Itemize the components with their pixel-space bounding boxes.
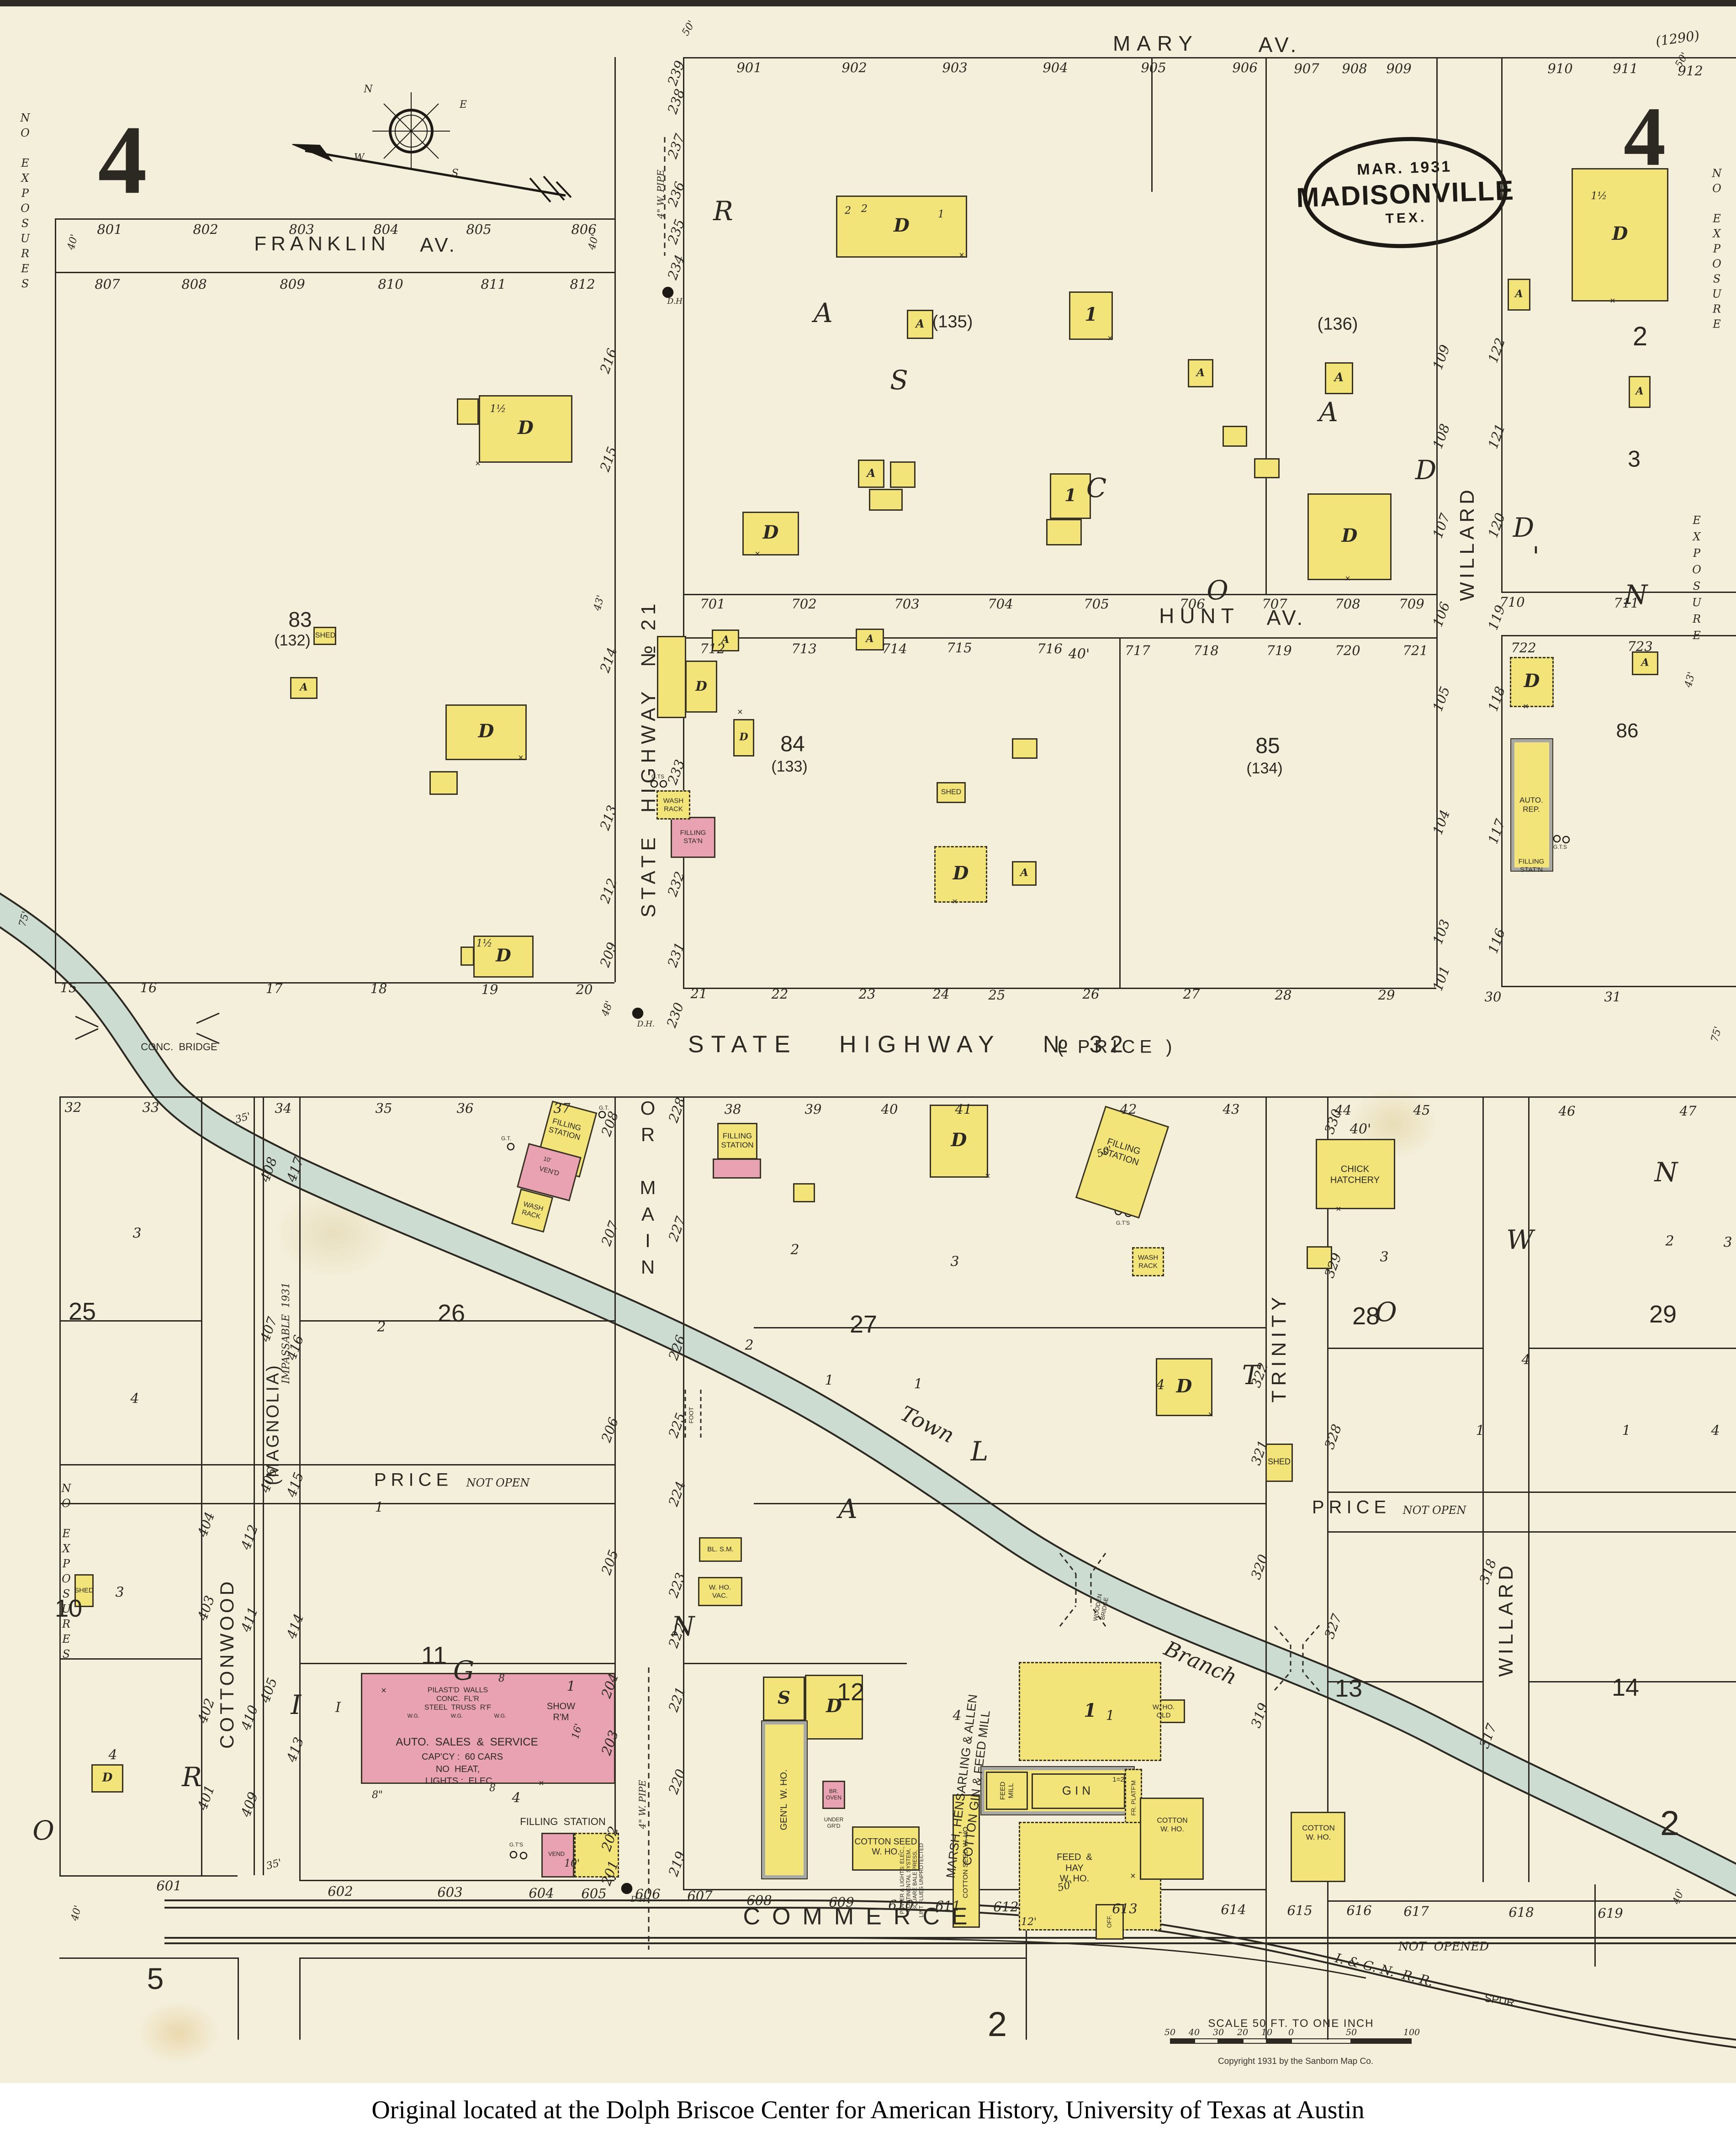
building-1: 1	[1069, 291, 1113, 340]
building-letter: D	[1342, 525, 1358, 546]
street-number: 607	[687, 1888, 712, 1904]
street-number: 617	[1403, 1904, 1429, 1919]
dimension-label: 1½	[1591, 190, 1607, 202]
hydrant-dot	[633, 1008, 643, 1018]
building-label: FR. PLATF'M	[1130, 1780, 1137, 1815]
compass-arrow	[305, 151, 566, 196]
street-number: 605	[581, 1886, 606, 1901]
building-A: A	[1508, 279, 1530, 311]
block-number: 25	[69, 1297, 96, 1327]
stamp-date: MAR. 1931	[1357, 158, 1452, 179]
dimension-label: 1	[938, 209, 944, 221]
lot-number: 4	[512, 1790, 520, 1806]
window-mark: ×	[737, 707, 743, 718]
building-letter: A	[1635, 386, 1643, 397]
street-name-label: N O E X P O S U R E	[1712, 166, 1722, 332]
lot-number: 1	[825, 1372, 833, 1388]
gas-tank-circle	[1554, 836, 1560, 842]
building-letter: D	[518, 417, 534, 439]
window-mark: ×	[1107, 333, 1113, 344]
addition-letter: D	[1513, 512, 1535, 543]
building-label: BL. S.M.	[707, 1545, 734, 1554]
building-label: G.T.	[599, 1105, 609, 1111]
block-number: 2	[988, 2004, 1007, 2045]
copyright-line: Copyright 1931 by the Sanborn Map Co.	[1218, 2057, 1373, 2067]
building-1: 1	[1050, 473, 1091, 519]
block-number: 84	[780, 732, 804, 758]
addition-letter: N	[1625, 579, 1648, 610]
street-number: 24	[933, 986, 950, 1002]
street-number: 37	[554, 1100, 571, 1116]
block-number: 29	[1649, 1300, 1677, 1329]
lot-number: 4	[1521, 1352, 1530, 1368]
building-D: D	[836, 196, 967, 258]
building-A: A	[907, 310, 933, 339]
lot-number: 2	[1665, 1233, 1674, 1249]
building-letter: D	[496, 945, 511, 966]
building-letter: D	[102, 1771, 113, 1785]
street-number: 43	[1223, 1101, 1240, 1117]
street-number: 36	[457, 1100, 474, 1116]
window-mark: ×	[475, 459, 481, 470]
scale-bar-segment	[1351, 2038, 1412, 2044]
building-label: AUTO. REP.	[1519, 796, 1543, 814]
building-label: WASH RACK	[663, 797, 683, 813]
street-line	[55, 982, 614, 984]
street-line	[59, 1503, 614, 1504]
addition-letter: O	[1375, 1296, 1397, 1328]
lot-number: 3	[115, 1584, 124, 1600]
block-number: 86	[1616, 719, 1639, 743]
building-label: COTTON W. HO.	[1157, 1817, 1187, 1834]
window-mark: ×	[1345, 574, 1350, 585]
compass-arrowhead	[292, 144, 332, 161]
street-number: 604	[529, 1885, 554, 1901]
addition-letter: A	[1319, 397, 1338, 428]
lot-number: 3	[950, 1254, 959, 1270]
scale-bar-tick: 100	[1403, 2027, 1420, 2037]
street-number: 38	[725, 1101, 741, 1117]
street-number: 34	[275, 1100, 292, 1116]
building	[429, 771, 458, 795]
lot-number: 4	[1711, 1423, 1720, 1439]
scale-bar-tick: 30	[1213, 2027, 1224, 2037]
window-mark: ×	[1523, 702, 1529, 713]
building-label: GIN	[1062, 1784, 1094, 1798]
street-number: 30	[1485, 989, 1502, 1005]
street-line	[299, 1957, 301, 2040]
street-number: 802	[193, 222, 218, 237]
building-A: A	[290, 677, 318, 699]
building-label: W.G.	[451, 1713, 463, 1719]
building-label: CAP'CY : 60 CARS	[422, 1752, 503, 1763]
building-letter: D	[953, 862, 969, 884]
street-number: 810	[378, 276, 403, 292]
lot-number: I	[335, 1699, 341, 1715]
street-name-label: MARY	[1113, 31, 1199, 56]
street-line	[55, 272, 614, 273]
building-label: WASH RACK	[1138, 1254, 1158, 1270]
building-label: G.T.	[501, 1135, 511, 1142]
street-number: 15	[60, 980, 77, 995]
street-number: 42	[1120, 1101, 1137, 1117]
street-number: 614	[1221, 1902, 1246, 1917]
street-number: 28	[1275, 987, 1292, 1003]
block-number: 10	[55, 1594, 82, 1624]
street-number: 906	[1232, 60, 1257, 75]
addition-letter: C	[1086, 472, 1106, 503]
street-number: 602	[328, 1883, 353, 1899]
scale-bar-segment	[1267, 2038, 1291, 2044]
building-D: D	[685, 661, 717, 713]
street-number: 719	[1266, 643, 1291, 658]
street-line	[59, 1658, 201, 1660]
building	[1012, 738, 1037, 759]
street-line	[1501, 986, 1736, 987]
building-label: OFF.	[1106, 1915, 1112, 1928]
street-number: 18	[370, 981, 387, 996]
building-label: FILLING STATION	[520, 1816, 605, 1828]
building-letter: A	[1515, 288, 1523, 300]
block-number: 5	[147, 1961, 164, 1997]
addition-letter: R	[713, 196, 733, 227]
addition-letter: T	[1242, 1359, 1260, 1391]
building-label: 4" W. PIPE	[637, 1780, 648, 1829]
street-number: 721	[1403, 643, 1428, 658]
street-number: 702	[791, 596, 816, 612]
scale-bar-tick: 40	[1189, 2027, 1200, 2037]
street-line	[1327, 1348, 1482, 1349]
stamp-state: TEX.	[1385, 210, 1427, 227]
street-name-label: NOT OPEN	[1403, 1504, 1466, 1517]
building-1: 1	[1019, 1662, 1161, 1761]
window-mark: ×	[959, 250, 964, 261]
dimension-label: 8"	[372, 1789, 383, 1801]
building-D: D	[1307, 493, 1392, 580]
compass-letter: N	[364, 84, 372, 95]
street-number: 812	[570, 276, 595, 292]
sanborn-map-page: MAR. 1931 MADISONVILLE TEX. SCALE 50 FT.…	[0, 0, 1736, 2137]
street-number: 807	[95, 276, 120, 292]
block-number: 2	[1633, 321, 1647, 352]
building-A: A	[1632, 651, 1658, 675]
addition-letter: G	[453, 1655, 474, 1686]
scale-bar-segment	[1243, 2038, 1267, 2044]
street-number: 26	[1083, 986, 1100, 1002]
scale-bar-segment	[1218, 2038, 1243, 2044]
building-A: A	[856, 629, 884, 651]
street-number: 615	[1287, 1903, 1312, 1918]
lot-number: 2	[790, 1242, 799, 1258]
street-number: 618	[1508, 1904, 1534, 1920]
lot-number: 1	[375, 1499, 383, 1515]
street-name-label: E X P O S U R E	[1692, 512, 1701, 644]
street-number: 908	[1342, 61, 1367, 76]
street-line	[754, 1503, 1265, 1504]
scale-bar-segment	[1194, 2038, 1218, 2044]
street-number: 723	[1627, 639, 1652, 654]
gas-tank-circle	[508, 1143, 514, 1150]
street-name-label: COTTONWOOD	[216, 1579, 238, 1749]
street-name-label: O R M A I N	[640, 1095, 656, 1280]
addition-letter: A	[838, 1493, 857, 1524]
building	[869, 489, 903, 511]
building-label: SHOW R'M	[547, 1701, 575, 1723]
street-line	[254, 1096, 255, 1875]
street-line	[299, 1957, 1026, 1959]
building-D: D	[742, 512, 799, 555]
building-label: FOOT	[688, 1407, 694, 1423]
addition-letter: I	[291, 1689, 302, 1720]
street-number: 16	[140, 980, 157, 995]
street-line	[59, 1464, 614, 1465]
lot-number: 3	[1380, 1249, 1388, 1265]
street-line	[1026, 1914, 1027, 2040]
street-name-label: AV.	[1259, 32, 1300, 57]
building	[1046, 519, 1082, 545]
building-label: PILAST'D WALLS CONC. FL'R STEEL TRUSS R'…	[424, 1687, 491, 1713]
building-label: G.T.S	[1553, 844, 1567, 850]
building-label: CONC. BRIDGE	[141, 1041, 217, 1053]
lot-number: 1	[566, 1678, 575, 1694]
street-line	[59, 1096, 61, 1875]
window-mark: ×	[518, 753, 524, 764]
stamp-city: MADISONVILLE	[1296, 174, 1514, 213]
lot-number: 1	[1476, 1423, 1484, 1439]
lot-number: 4	[1156, 1377, 1164, 1393]
building-label: FILLING STA'N	[680, 829, 706, 845]
street-number: 27	[1183, 986, 1200, 1002]
street-number: 714	[882, 641, 907, 656]
building-label: UNDER GR'D	[824, 1816, 844, 1829]
building-letter: A	[1196, 366, 1205, 379]
street-line	[59, 1875, 238, 1877]
building-label: GEN'L W. HO.	[779, 1769, 790, 1830]
street-number: 612	[993, 1899, 1018, 1915]
street-number: 707	[1262, 596, 1287, 612]
block-number: 2	[1660, 1803, 1679, 1844]
dimension-label: 2	[845, 205, 851, 217]
addition-letter: R	[182, 1761, 202, 1793]
street-line	[55, 218, 56, 982]
street-number: 46	[1559, 1103, 1576, 1119]
building-label: W.G.	[494, 1713, 507, 1719]
building-letter: A	[1020, 867, 1028, 879]
compass-letter: W	[354, 152, 365, 164]
building-label: VEND	[548, 1850, 565, 1857]
street-number: 32	[65, 1100, 82, 1115]
lot-number: 3	[1723, 1234, 1732, 1250]
street-number: 801	[97, 222, 122, 237]
street-number: 21	[691, 986, 708, 1001]
window-mark: ×	[755, 549, 760, 560]
street-number: 29	[1378, 987, 1395, 1003]
street-number: 613	[1112, 1901, 1137, 1916]
lot-number: 1	[1106, 1708, 1114, 1724]
street-number: 619	[1598, 1905, 1623, 1921]
street-number: 701	[700, 596, 725, 612]
hydrant-dot	[622, 1883, 632, 1894]
building-A: A	[1188, 359, 1213, 387]
street-line	[299, 1880, 614, 1881]
scale-bar-segment	[1291, 2038, 1351, 2044]
building	[793, 1183, 815, 1202]
street-number: 39	[805, 1101, 822, 1117]
street-line	[754, 1327, 1265, 1328]
street-name-label: AV.	[420, 233, 457, 257]
building-label: D.H.	[631, 1895, 649, 1904]
street-line	[1327, 1492, 1736, 1493]
building-A: A	[1325, 362, 1353, 394]
street-number: 909	[1386, 61, 1411, 76]
street-line	[1501, 57, 1503, 592]
lot-number: 4	[108, 1747, 117, 1763]
street-number: 35	[376, 1100, 392, 1116]
lot-number: 40'	[1350, 1121, 1371, 1137]
building-D: D	[445, 704, 527, 760]
lot-number: 4	[953, 1708, 961, 1724]
street-number: 704	[988, 596, 1013, 612]
compass-feather	[530, 176, 571, 202]
block-number: (134)	[1246, 759, 1282, 778]
building-letter: D	[478, 720, 494, 742]
building-letter: A	[1641, 657, 1649, 669]
street-number: 19	[482, 982, 498, 997]
street-name-label: N O E X P O S U R E S	[62, 1481, 71, 1662]
street-number: 722	[1511, 640, 1536, 656]
street-number: 703	[894, 596, 919, 612]
lot-number: 2	[745, 1337, 753, 1353]
building-label: 1=2	[1112, 1776, 1124, 1784]
street-number: 712	[700, 641, 725, 656]
street-number: 804	[373, 222, 398, 237]
street-name-label: N O E X P O S U R E S	[21, 111, 30, 291]
archive-caption: Original located at the Dolph Briscoe Ce…	[0, 2083, 1736, 2137]
building-letter: D	[695, 678, 707, 694]
building-letter: A	[300, 682, 307, 693]
street-line	[59, 1957, 238, 1959]
lot-number: 40'	[1069, 646, 1090, 662]
street-line	[683, 57, 1736, 58]
street-name-label: FRANKLIN	[254, 232, 390, 256]
street-number: 803	[289, 222, 314, 237]
street-line	[683, 988, 1436, 989]
block-number: 11	[421, 1641, 447, 1671]
street-line	[201, 1096, 202, 1875]
addition-letter: S	[890, 365, 908, 396]
street-name-label: NOT OPEN	[466, 1476, 530, 1489]
building-letter: D	[739, 731, 748, 743]
building-label: FILLING STAT'N	[1519, 857, 1545, 873]
window-mark: ×	[1610, 296, 1615, 307]
building-label: 4" W. PIPE	[656, 169, 667, 218]
block-number: 26	[438, 1299, 465, 1328]
building-label: G.TS	[651, 773, 664, 780]
building-label: D.H.	[667, 297, 685, 306]
street-number: 905	[1141, 60, 1166, 75]
dimension-label: 8	[489, 1783, 496, 1794]
block-number: 27	[850, 1310, 877, 1339]
building	[457, 398, 479, 425]
window-mark: ×	[1130, 1871, 1136, 1882]
building-letter: S	[778, 1687, 790, 1708]
street-number: 45	[1413, 1102, 1430, 1118]
gas-tank-circle	[1563, 836, 1569, 843]
compass-letter: S	[451, 168, 458, 180]
hydrant-dot	[663, 287, 673, 297]
street-number: 811	[481, 276, 506, 292]
building-label: W. HO. VAC.	[709, 1583, 731, 1599]
building-label: SHED	[74, 1587, 94, 1595]
scale-bar-tick: 0	[1288, 2027, 1294, 2037]
street-number: 901	[736, 60, 762, 75]
lot-number: 2	[377, 1319, 386, 1335]
street-name-label: WILLARD	[1455, 486, 1479, 601]
street-number: 23	[859, 986, 876, 1002]
street-name-label: PRICE	[1312, 1497, 1391, 1518]
building	[713, 1158, 761, 1179]
block-number: 3	[1628, 446, 1641, 473]
building-A: A	[1629, 376, 1651, 408]
addition-letter: '	[1532, 541, 1540, 572]
dimension-label: 10'	[564, 1858, 580, 1870]
building	[1140, 1798, 1204, 1880]
street-number: 718	[1193, 643, 1218, 658]
addition-letter: A	[814, 297, 833, 328]
street-number: 809	[280, 276, 305, 292]
building-label: W.G.	[408, 1713, 420, 1719]
block-number: (133)	[771, 757, 807, 776]
street-number: 910	[1547, 61, 1572, 76]
block-number: (135)	[932, 312, 973, 333]
street-number: 903	[942, 60, 967, 75]
street-number: 31	[1604, 989, 1621, 1005]
block-number: (132)	[274, 631, 310, 650]
building-D: D	[934, 846, 987, 903]
street-name-label: IMPASSABLE 1931	[281, 1282, 292, 1384]
street-line	[238, 1957, 239, 2040]
building-label: SHED	[941, 788, 961, 797]
addition-letter: N	[1655, 1157, 1678, 1188]
building-D: D	[1510, 657, 1554, 707]
street-line	[1327, 1096, 1328, 2040]
block-number: (136)	[1318, 314, 1358, 335]
window-mark: ×	[381, 1686, 386, 1697]
building-letter: D	[1524, 670, 1540, 692]
street-line	[1482, 1096, 1484, 1882]
building-label: D.H.	[637, 1020, 655, 1029]
street-number: 608	[746, 1893, 772, 1908]
addition-letter: O	[32, 1815, 54, 1846]
gas-tank-circle	[510, 1851, 517, 1858]
addition-letter: W	[1506, 1224, 1534, 1255]
building	[890, 461, 916, 488]
scale-bar-segment	[1170, 2038, 1194, 2044]
street-number: 616	[1346, 1903, 1371, 1918]
street-number: 904	[1043, 60, 1068, 75]
sanborn-map-sheet: MAR. 1931 MADISONVILLE TEX. SCALE 50 FT.…	[0, 0, 1736, 2083]
street-name-label: STATE HIGHWAY № 21	[637, 599, 661, 917]
scale-bar-tick: 20	[1237, 2027, 1248, 2037]
building-label: FEED MILL	[999, 1782, 1015, 1800]
addition-letter: D	[1415, 455, 1437, 486]
building-letter: A	[1334, 371, 1344, 385]
building-A: A	[1012, 861, 1037, 886]
block-number: 13	[1335, 1674, 1362, 1703]
compass-letter: E	[460, 99, 467, 111]
building	[1223, 426, 1247, 447]
street-name-label: ( PRICE )	[1057, 1036, 1176, 1058]
